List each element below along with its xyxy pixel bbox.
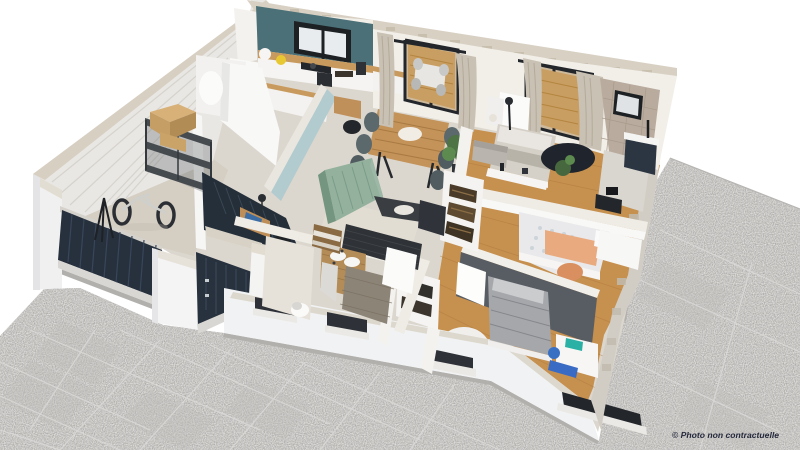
- svg-text:© Photo non contractuelle: © Photo non contractuelle: [672, 430, 779, 440]
